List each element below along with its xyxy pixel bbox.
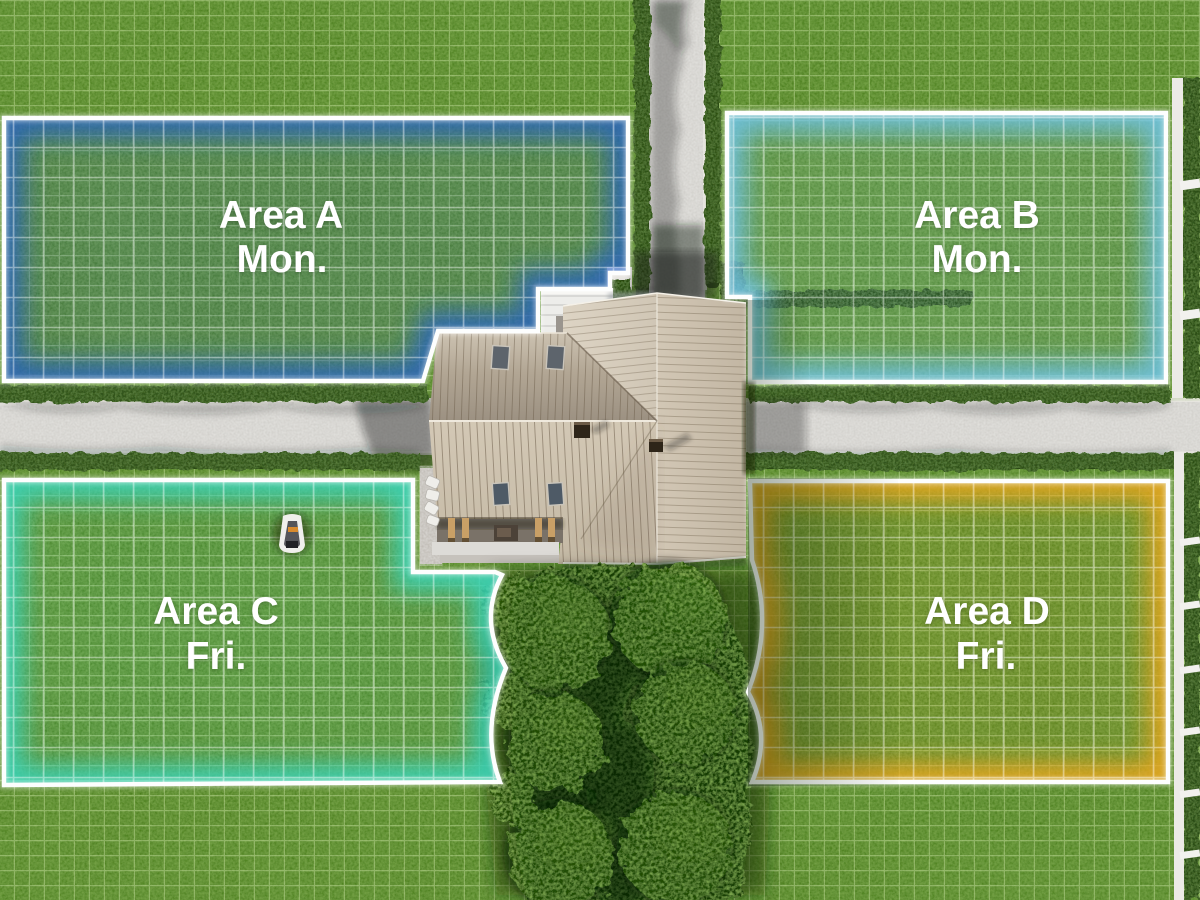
svg-text:Fri.: Fri. [186,635,247,678]
svg-text:Area A: Area A [219,194,343,237]
svg-text:Mon.: Mon. [237,238,328,281]
svg-text:Fri.: Fri. [956,635,1017,678]
svg-text:Area D: Area D [924,590,1050,633]
svg-text:Area B: Area B [914,194,1040,237]
svg-text:Area C: Area C [153,590,279,633]
svg-text:Mon.: Mon. [932,238,1023,281]
